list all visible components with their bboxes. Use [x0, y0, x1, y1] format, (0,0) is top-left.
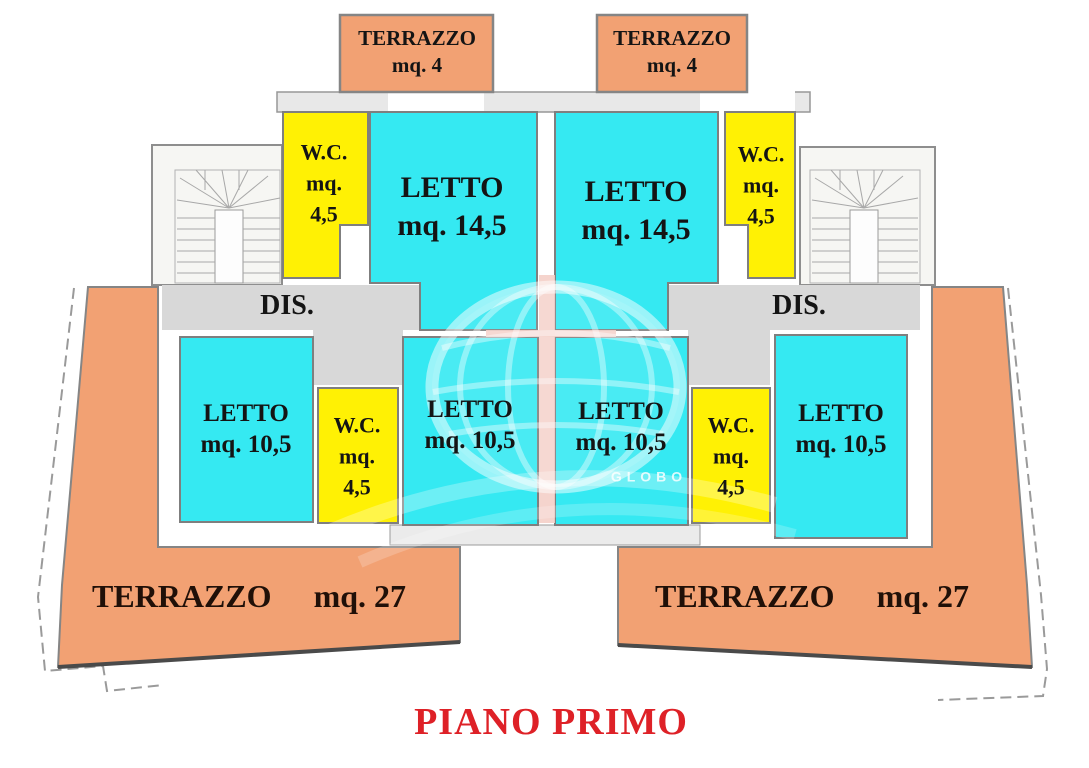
room-area: mq. 4	[647, 53, 697, 77]
bedroom-center-right-label: LETTO mq. 10,5	[576, 396, 667, 458]
floor-title: PIANO PRIMO	[414, 700, 688, 746]
wc-upper-right-label: W.C. mq. 4,5	[738, 139, 785, 232]
room-area: mq. 10,5	[576, 429, 667, 456]
bedroom-center-left-label: LETTO mq. 10,5	[425, 394, 516, 456]
room-area: mq. 4	[392, 53, 442, 77]
room-unit: mq.	[713, 444, 749, 469]
wc-lower-left-label: W.C. mq. 4,5	[334, 410, 381, 503]
room-name: W.C.	[738, 142, 785, 167]
stairwell-right	[800, 147, 935, 285]
room-name: LETTO	[427, 396, 513, 423]
room-unit: mq.	[743, 173, 779, 198]
door-opening-right	[700, 90, 795, 114]
room-area: 4,5	[310, 202, 338, 227]
room-area: 4,5	[717, 475, 745, 500]
floor-plan-drawing	[0, 0, 1089, 768]
bedroom-large-left-label: LETTO mq. 14,5	[397, 169, 506, 245]
room-name: LETTO	[798, 400, 884, 427]
room-name: LETTO	[203, 400, 289, 427]
room-area: mq. 14,5	[397, 209, 506, 242]
terrace-top-left-label: TERRAZZO mq. 4	[358, 25, 476, 79]
wc-upper-left-label: W.C. mq. 4,5	[301, 137, 348, 230]
hall-right-label: DIS.	[772, 289, 826, 323]
room-name: TERRAZZO	[613, 26, 731, 50]
room-unit: mq.	[339, 444, 375, 469]
room-name: TERRAZZO	[92, 578, 272, 614]
brand-name: GLOBO	[611, 469, 687, 485]
stairwell-left	[152, 145, 282, 285]
room-name: TERRAZZO	[655, 578, 835, 614]
bedroom-large-right-label: LETTO mq. 14,5	[581, 173, 690, 249]
room-area: 4,5	[343, 475, 371, 500]
room-name: TERRAZZO	[358, 26, 476, 50]
bedroom-far-left-label: LETTO mq. 10,5	[201, 398, 292, 460]
door-opening-left	[388, 90, 484, 114]
room-unit: mq.	[306, 171, 342, 196]
room-name: LETTO	[578, 398, 664, 425]
room-name: W.C.	[301, 140, 348, 165]
terrace-bottom-left-label: TERRAZZOmq. 27	[92, 577, 406, 615]
bedroom-far-right-label: LETTO mq. 10,5	[796, 398, 887, 460]
room-area: mq. 27	[877, 578, 969, 614]
watermark-brand-text: GLOBO	[611, 469, 687, 486]
floor-title-text: PIANO PRIMO	[414, 701, 688, 743]
room-name: DIS.	[772, 290, 826, 321]
floor-plan: TERRAZZO mq. 4 TERRAZZO mq. 4 W.C. mq. 4…	[0, 0, 1089, 768]
wc-lower-right-label: W.C. mq. 4,5	[708, 410, 755, 503]
room-area: mq. 27	[314, 578, 406, 614]
room-name: DIS.	[260, 290, 314, 321]
room-name: LETTO	[585, 175, 688, 208]
room-area: mq. 14,5	[581, 213, 690, 246]
room-name: LETTO	[401, 171, 504, 204]
hall-left-label: DIS.	[260, 289, 314, 323]
terrace-bottom-right-label: TERRAZZOmq. 27	[655, 577, 969, 615]
terrace-top-right-label: TERRAZZO mq. 4	[613, 25, 731, 79]
room-name: W.C.	[334, 413, 381, 438]
room-name: W.C.	[708, 413, 755, 438]
room-area: mq. 10,5	[425, 427, 516, 454]
room-area: mq. 10,5	[796, 431, 887, 458]
room-area: 4,5	[747, 204, 775, 229]
room-area: mq. 10,5	[201, 431, 292, 458]
